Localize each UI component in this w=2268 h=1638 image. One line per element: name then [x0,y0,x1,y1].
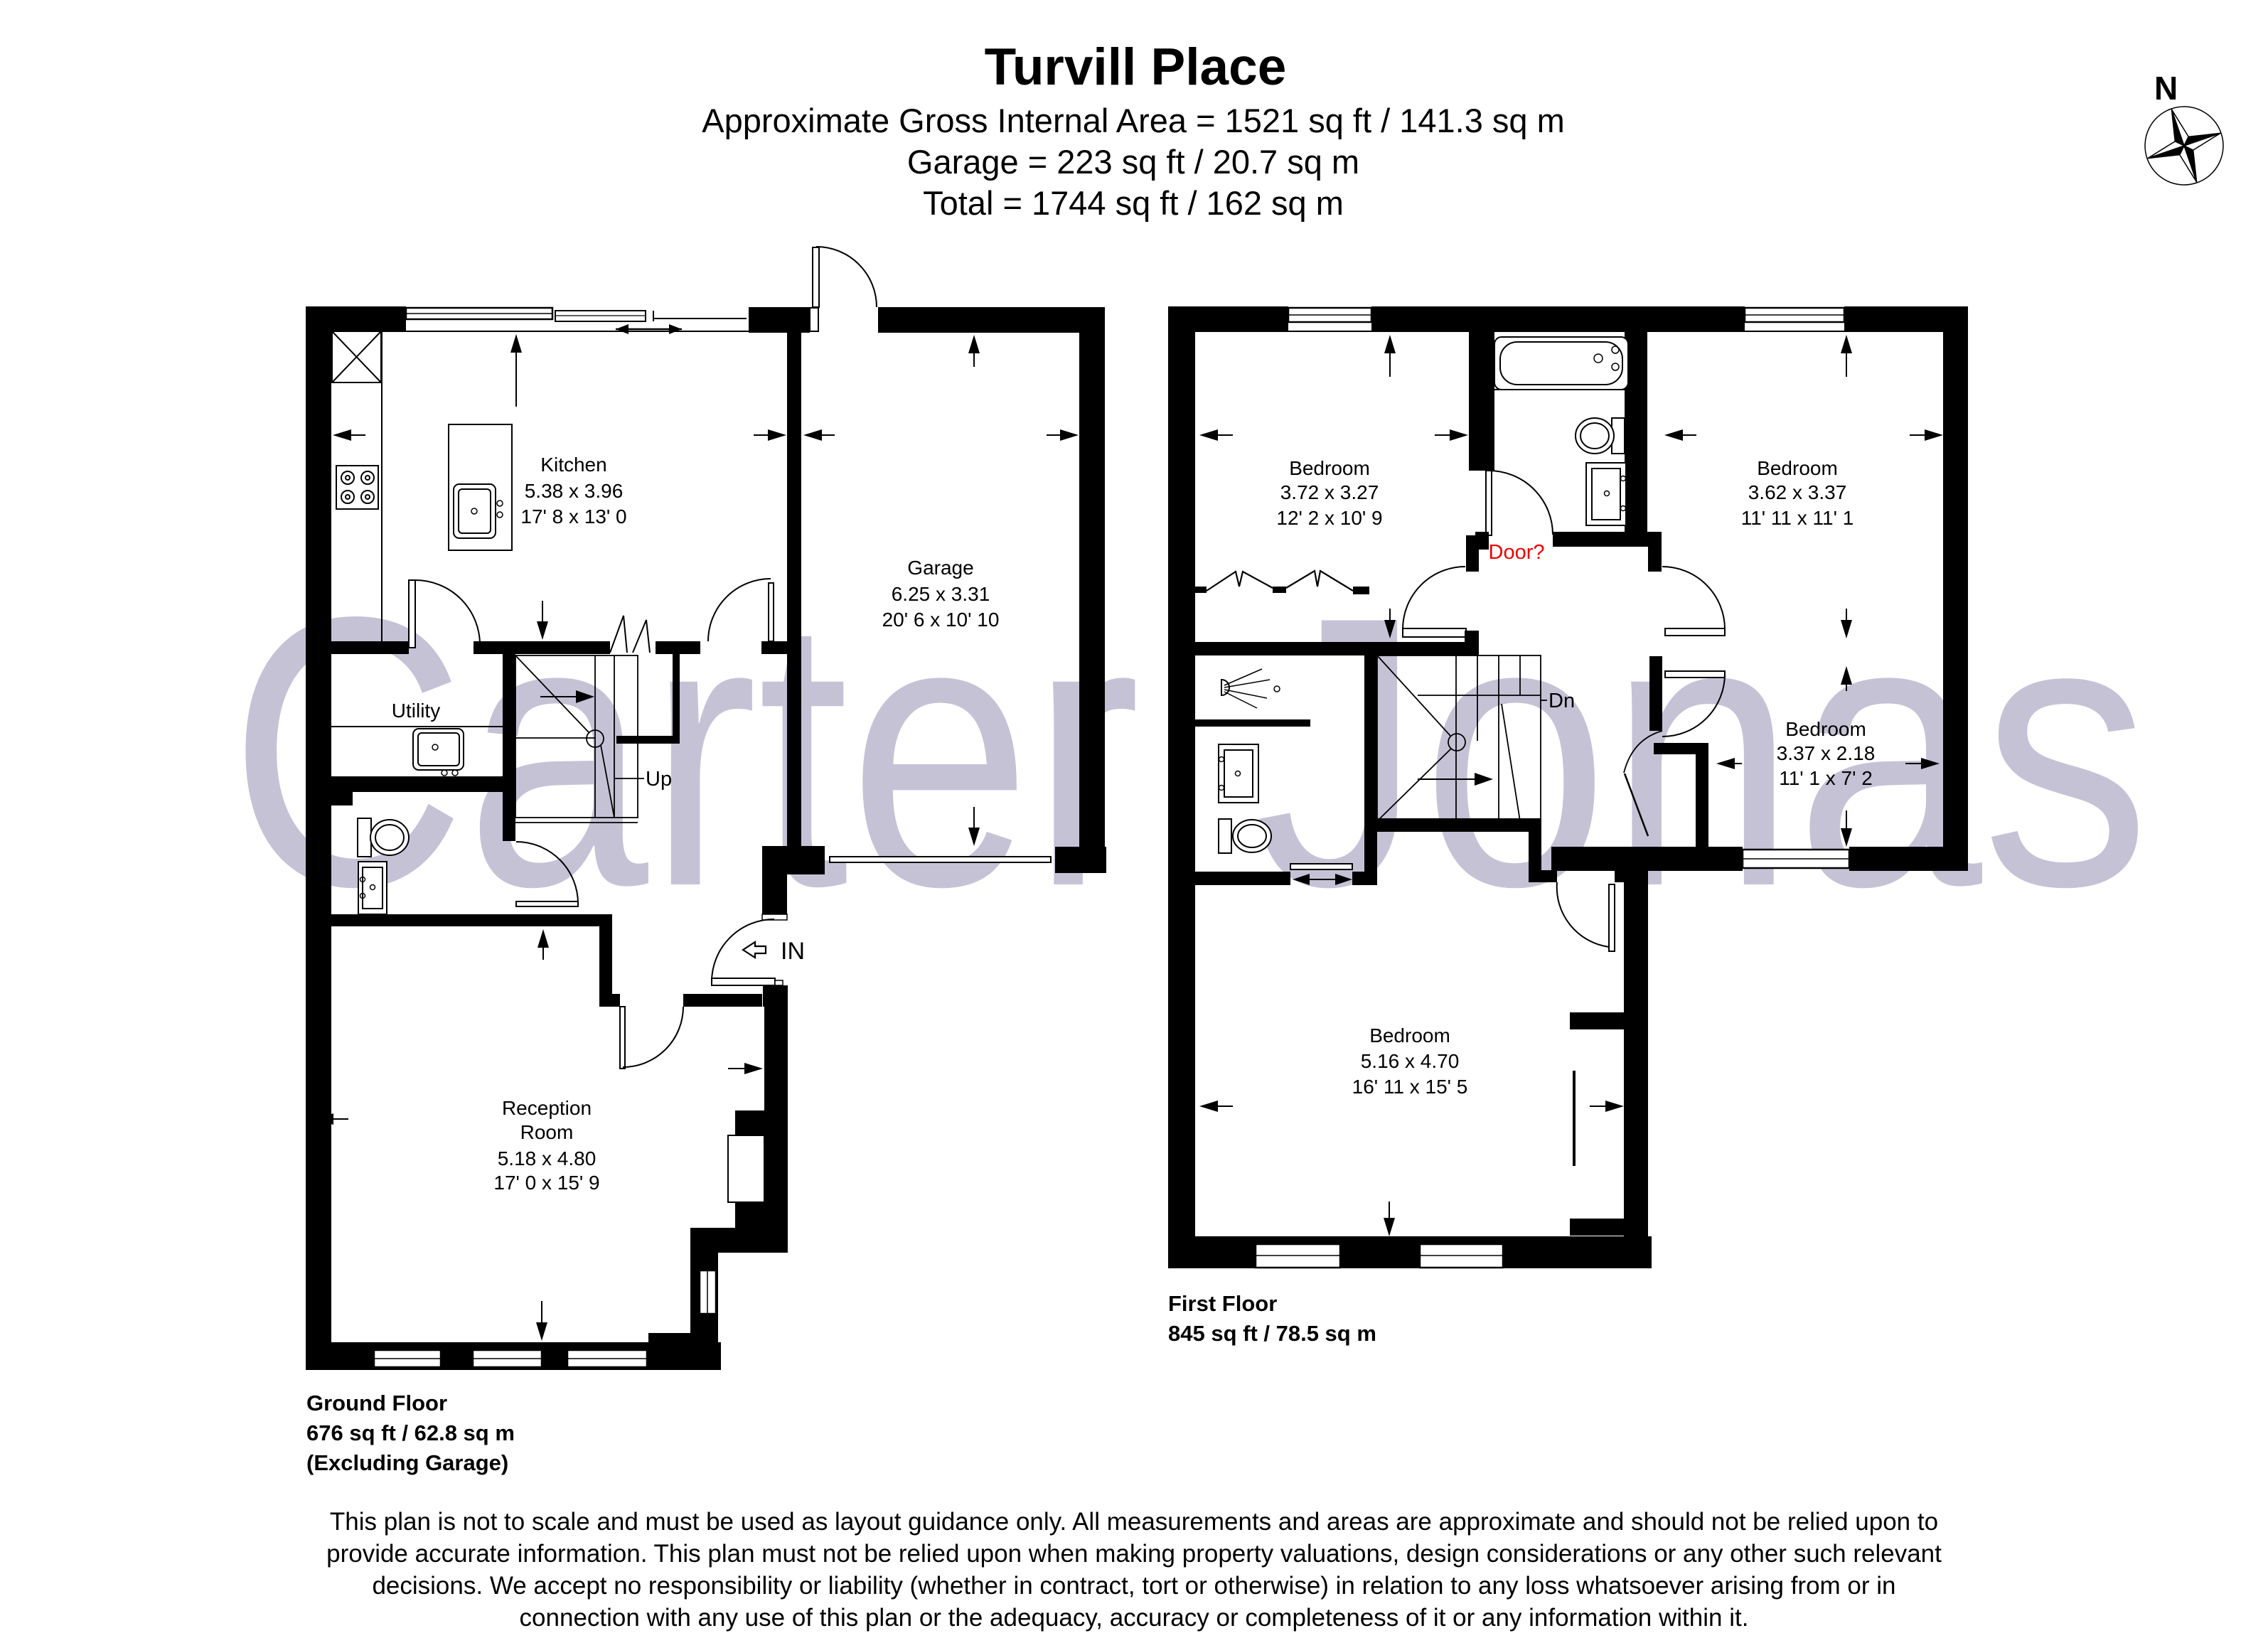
svg-text:connection with any use of thi: connection with any use of this plan or … [520,1604,1749,1632]
svg-text:6.25 x 3.31: 6.25 x 3.31 [892,583,990,605]
svg-text:Reception: Reception [502,1097,592,1119]
svg-text:16' 11 x 15' 5: 16' 11 x 15' 5 [1352,1076,1468,1098]
svg-text:Up: Up [646,768,672,791]
svg-text:N: N [2154,70,2178,107]
svg-text:17' 0 x 15' 9: 17' 0 x 15' 9 [493,1172,599,1194]
svg-text:IN: IN [781,938,805,965]
svg-text:5.38 x 3.96: 5.38 x 3.96 [525,480,624,502]
svg-text:3.72 x 3.27: 3.72 x 3.27 [1280,481,1379,503]
svg-text:11' 1 x 7' 2: 11' 1 x 7' 2 [1779,767,1873,789]
svg-text:provide accurate information.: provide accurate information. This plan … [326,1540,1942,1568]
svg-text:5.16 x 4.70: 5.16 x 4.70 [1361,1050,1460,1072]
svg-text:Garage = 223 sq ft / 20.7 sq m: Garage = 223 sq ft / 20.7 sq m [907,143,1359,181]
svg-text:Bedroom: Bedroom [1289,457,1370,479]
svg-text:First Floor: First Floor [1168,1291,1277,1316]
svg-text:17' 8 x 13' 0: 17' 8 x 13' 0 [520,505,626,528]
svg-text:Kitchen: Kitchen [540,454,606,476]
svg-text:decisions. We accept no respon: decisions. We accept no responsibility o… [372,1572,1895,1600]
svg-text:Ground Floor: Ground Floor [306,1391,447,1415]
svg-text:Bedroom: Bedroom [1369,1024,1450,1046]
svg-text:676 sq ft / 62.8 sq m: 676 sq ft / 62.8 sq m [306,1420,515,1445]
svg-text:Garage: Garage [907,557,973,579]
svg-text:20' 6 x 10' 10: 20' 6 x 10' 10 [882,609,1000,631]
svg-text:Door?: Door? [1489,541,1545,564]
svg-text:Approximate Gross Internal Are: Approximate Gross Internal Area = 1521 s… [702,102,1565,139]
svg-text:845 sq ft / 78.5 sq m: 845 sq ft / 78.5 sq m [1168,1321,1376,1346]
svg-text:Utility: Utility [392,700,440,722]
svg-text:Bedroom: Bedroom [1785,718,1866,740]
svg-text:5.18 x 4.80: 5.18 x 4.80 [498,1147,597,1169]
svg-text:11' 11 x 11' 1: 11' 11 x 11' 1 [1741,507,1854,529]
svg-text:Turvill Place: Turvill Place [985,38,1287,96]
svg-text:3.62 x 3.37: 3.62 x 3.37 [1748,481,1847,503]
svg-text:Dn: Dn [1548,690,1575,712]
svg-text:Total = 1744 sq ft / 162 sq m: Total = 1744 sq ft / 162 sq m [923,184,1344,222]
svg-text:This plan is not to scale and: This plan is not to scale and must be us… [330,1508,1938,1536]
svg-text:(Excluding Garage): (Excluding Garage) [306,1450,508,1475]
svg-text:12' 2 x 10' 9: 12' 2 x 10' 9 [1276,507,1382,529]
svg-text:3.37 x 2.18: 3.37 x 2.18 [1777,742,1876,764]
svg-text:Room: Room [520,1121,574,1143]
svg-text:Bedroom: Bedroom [1757,457,1838,479]
